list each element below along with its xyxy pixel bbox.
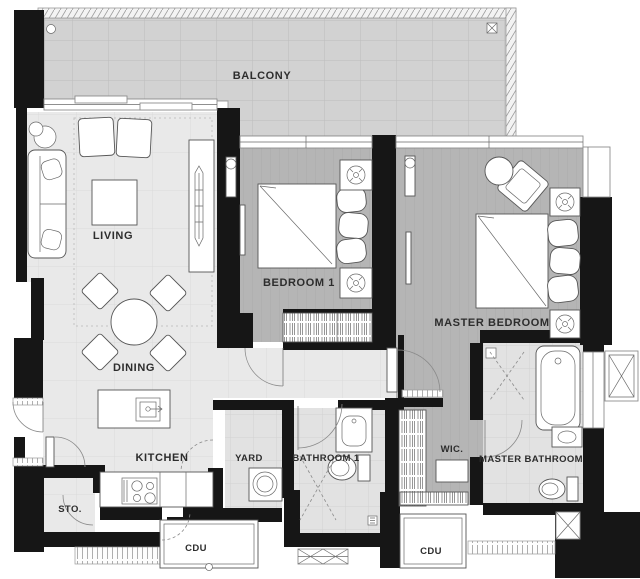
tv-console-icon bbox=[189, 140, 214, 272]
table-lamp-icon bbox=[347, 166, 365, 184]
cdu-left-unit bbox=[160, 520, 258, 571]
room-label-balcony: BALCONY bbox=[233, 70, 292, 82]
pillow-icon bbox=[547, 274, 580, 303]
nightstand-icon bbox=[550, 188, 580, 216]
pillow-icon bbox=[338, 212, 369, 239]
kitchen-counter bbox=[100, 472, 213, 507]
washing-machine-icon bbox=[249, 468, 282, 501]
room-label-bathroom1: BATHROOM 1 bbox=[292, 453, 359, 464]
louver-vent-icon bbox=[75, 547, 160, 564]
vanity-sink-icon bbox=[552, 427, 582, 447]
nightstand-icon bbox=[340, 160, 372, 190]
master-door-threshold bbox=[402, 390, 443, 397]
room-label-bedroom1: BEDROOM 1 bbox=[263, 277, 335, 289]
shaft-icon bbox=[556, 512, 580, 539]
dining-table-icon bbox=[111, 299, 157, 345]
wardrobe-icon bbox=[283, 309, 372, 342]
balcony-spigot-icon bbox=[47, 25, 56, 34]
room-label-cdu-right: CDU bbox=[420, 546, 442, 557]
double-bed-icon bbox=[258, 184, 369, 268]
nightstand-icon bbox=[340, 268, 372, 298]
stove-icon bbox=[122, 478, 157, 504]
pillow-icon bbox=[336, 186, 367, 213]
louver-vent-icon bbox=[468, 541, 555, 554]
balcony-railing-top bbox=[38, 8, 516, 18]
pillow-icon bbox=[547, 219, 580, 248]
table-lamp-icon bbox=[556, 193, 574, 211]
room-label-yard: YARD bbox=[235, 453, 263, 464]
room-label-wic: WIC. bbox=[441, 444, 464, 455]
vanity-sink-icon bbox=[336, 408, 372, 452]
floor-drain-icon bbox=[368, 516, 377, 525]
entry-threshold bbox=[13, 398, 43, 405]
pillow-icon bbox=[549, 247, 581, 276]
room-label-living: LIVING bbox=[93, 230, 133, 242]
room-label-master-bedroom: MASTER BEDROOM bbox=[434, 317, 549, 329]
floor-plan: BALCONY LIVING DINING KITCHEN STO. BEDRO… bbox=[0, 0, 640, 579]
wall-tv-icon bbox=[240, 205, 245, 255]
balcony-railing-right bbox=[506, 8, 516, 138]
sofa-icon bbox=[28, 150, 66, 258]
double-bed-icon bbox=[476, 214, 581, 308]
wall-tv-icon bbox=[406, 232, 411, 284]
room-label-master-bathroom: MASTER BATHROOM bbox=[479, 454, 583, 465]
room-label-kitchen: KITCHEN bbox=[135, 452, 188, 464]
table-lamp-icon bbox=[347, 274, 365, 292]
table-lamp-icon bbox=[556, 315, 574, 333]
balcony-door-leaf bbox=[226, 157, 236, 197]
cdu-right-unit bbox=[400, 514, 466, 568]
pillow-icon bbox=[336, 237, 368, 264]
room-label-cdu-left: CDU bbox=[185, 543, 207, 554]
side-table-icon bbox=[485, 157, 513, 185]
bench-icon bbox=[436, 460, 468, 482]
room-label-storage: STO. bbox=[58, 504, 82, 515]
vent-window bbox=[298, 549, 348, 564]
bathtub-icon bbox=[536, 346, 580, 430]
kitchen-island-icon bbox=[98, 390, 170, 428]
toilet-icon bbox=[539, 477, 578, 501]
balcony-door-leaf bbox=[405, 156, 415, 196]
floor-plan-page: BALCONY LIVING DINING KITCHEN STO. BEDRO… bbox=[0, 0, 640, 579]
foyer-threshold bbox=[13, 458, 43, 466]
coffee-table-icon bbox=[92, 180, 137, 225]
nightstand-icon bbox=[550, 310, 580, 338]
room-label-dining: DINING bbox=[113, 362, 155, 374]
